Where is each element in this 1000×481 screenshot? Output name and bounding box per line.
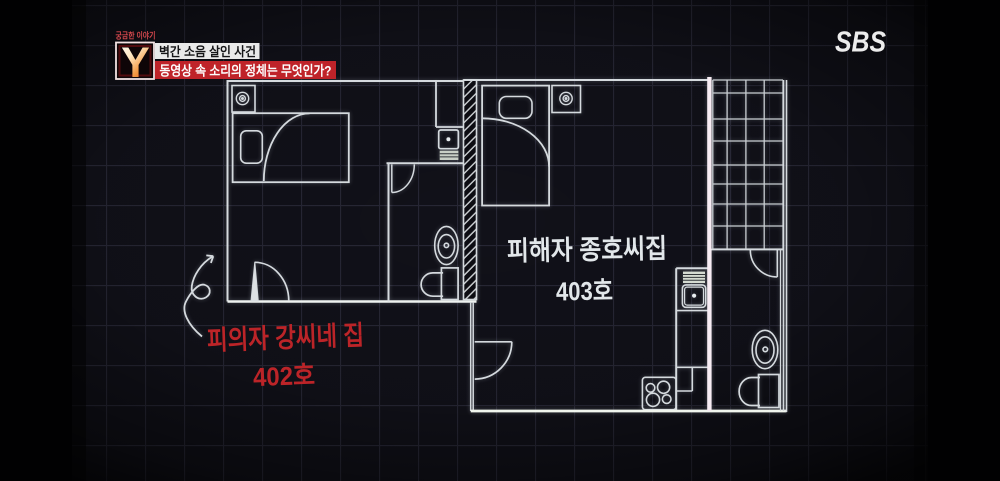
svg-text:SBS: SBS — [835, 27, 886, 59]
svg-text:Y: Y — [121, 39, 150, 87]
svg-text:동영상 속 소리의 정체는 무엇인가?: 동영상 속 소리의 정체는 무엇인가? — [160, 62, 332, 78]
svg-text:벽간 소음 살인 사건: 벽간 소음 살인 사건 — [159, 44, 256, 59]
